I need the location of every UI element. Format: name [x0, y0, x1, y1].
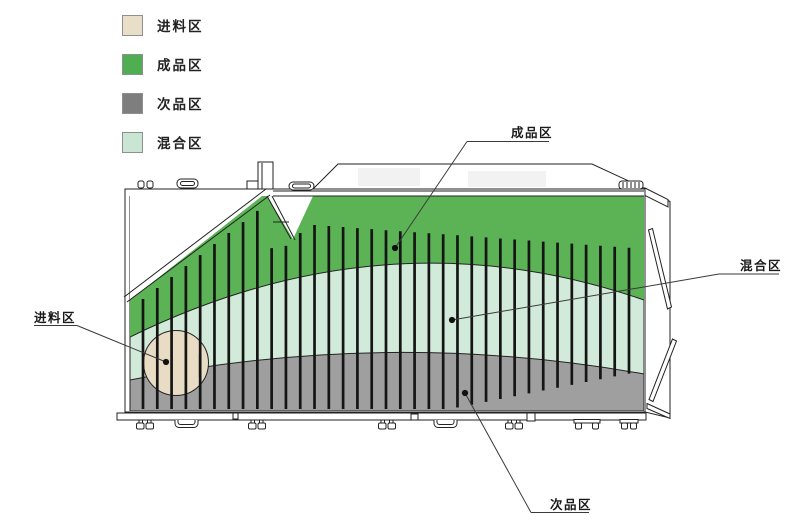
leader-dot-mixed — [449, 317, 455, 323]
foot-bar — [620, 420, 638, 424]
diagram-canvas: 进料区 成品区 次品区 混合区 — [0, 0, 800, 530]
leader-dot-finished — [392, 245, 398, 251]
caster-wheel — [622, 423, 628, 429]
roof-shade — [468, 171, 546, 187]
feed-inlet-box — [258, 162, 273, 189]
label-mixed-zone: 混合区 — [740, 258, 782, 273]
feed-zone-circle — [144, 331, 209, 396]
machine-diagram: 进料区 成品区 混合区 次品区 — [0, 0, 800, 530]
caster-wheel — [258, 423, 266, 429]
foot-bar — [574, 420, 600, 424]
caster-wheel — [631, 423, 637, 429]
caster-wheel — [593, 423, 599, 429]
caster-wheel — [379, 423, 387, 429]
rail-tab — [527, 413, 535, 421]
leader-dot-reject — [462, 390, 468, 396]
top-bolt — [138, 181, 144, 188]
machine-roof — [313, 164, 646, 189]
rail-tab — [411, 414, 418, 420]
caster-wheel — [506, 423, 514, 429]
rail-tab — [233, 413, 238, 419]
roof-shade — [358, 168, 420, 186]
caster-wheel — [137, 423, 145, 429]
machine-right-end — [645, 188, 677, 419]
machine-feet — [137, 420, 639, 430]
caster-wheel — [249, 423, 257, 429]
leader-dot-feed — [163, 359, 169, 365]
top-bolt — [147, 181, 153, 188]
caster-wheel — [388, 423, 396, 429]
label-feed-zone: 进料区 — [34, 310, 76, 325]
caster-wheel — [146, 423, 154, 429]
label-reject-zone: 次品区 — [550, 497, 592, 512]
caster-wheel — [515, 423, 523, 429]
label-finished-zone: 成品区 — [511, 125, 553, 140]
feed-inlet-base — [247, 181, 258, 189]
caster-wheel — [576, 423, 582, 429]
